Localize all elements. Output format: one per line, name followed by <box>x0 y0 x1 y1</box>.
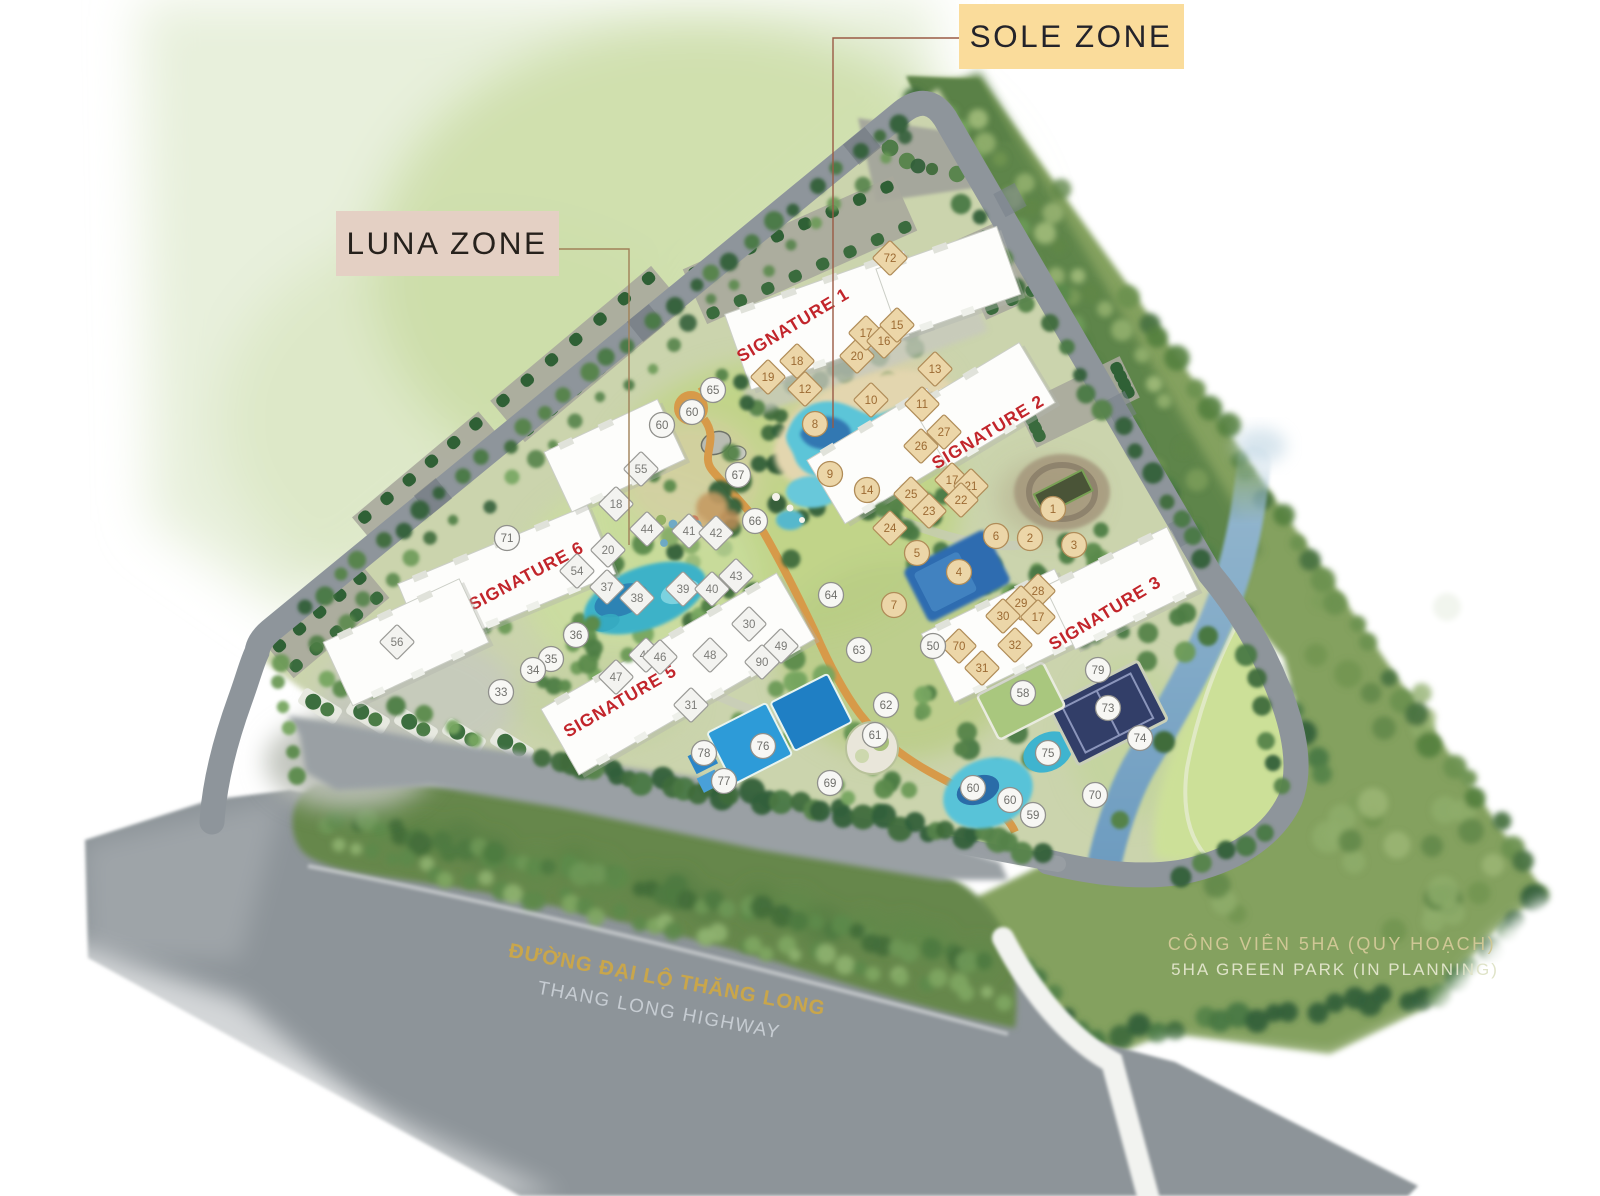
svg-text:5HA GREEN PARK (IN PLANNING): 5HA GREEN PARK (IN PLANNING) <box>1171 960 1499 979</box>
svg-text:61: 61 <box>869 730 882 742</box>
svg-text:18: 18 <box>610 499 623 511</box>
svg-text:2: 2 <box>1027 533 1033 545</box>
svg-text:23: 23 <box>923 506 936 518</box>
svg-text:1: 1 <box>1050 504 1056 516</box>
svg-text:69: 69 <box>824 778 837 790</box>
svg-text:7: 7 <box>891 600 897 612</box>
svg-text:LUNA ZONE: LUNA ZONE <box>346 225 547 261</box>
svg-text:56: 56 <box>391 637 404 649</box>
svg-text:60: 60 <box>686 407 699 419</box>
svg-text:32: 32 <box>1009 640 1022 652</box>
svg-text:9: 9 <box>827 469 833 481</box>
svg-text:12: 12 <box>799 384 812 396</box>
svg-text:8: 8 <box>812 419 818 431</box>
svg-text:59: 59 <box>1027 810 1040 822</box>
svg-text:66: 66 <box>749 516 762 528</box>
svg-text:20: 20 <box>602 545 615 557</box>
svg-text:11: 11 <box>916 399 928 411</box>
svg-text:71: 71 <box>501 533 514 545</box>
svg-text:27: 27 <box>938 427 951 439</box>
svg-text:77: 77 <box>718 776 731 788</box>
svg-text:90: 90 <box>756 657 769 669</box>
svg-text:62: 62 <box>880 700 893 712</box>
svg-text:39: 39 <box>677 584 690 596</box>
svg-text:60: 60 <box>656 420 669 432</box>
svg-text:79: 79 <box>1092 665 1105 677</box>
svg-text:22: 22 <box>955 495 968 507</box>
svg-text:78: 78 <box>698 748 711 760</box>
svg-text:75: 75 <box>1042 748 1055 760</box>
svg-text:6: 6 <box>993 531 999 543</box>
svg-text:26: 26 <box>915 441 928 453</box>
svg-text:74: 74 <box>1134 733 1147 745</box>
svg-text:64: 64 <box>825 590 838 602</box>
svg-text:58: 58 <box>1017 688 1030 700</box>
svg-text:72: 72 <box>884 253 897 265</box>
svg-text:20: 20 <box>851 351 864 363</box>
svg-text:31: 31 <box>685 700 698 712</box>
svg-text:38: 38 <box>631 593 644 605</box>
svg-text:67: 67 <box>732 470 745 482</box>
svg-text:SOLE ZONE: SOLE ZONE <box>970 18 1173 54</box>
svg-text:44: 44 <box>641 524 654 536</box>
svg-text:30: 30 <box>997 611 1010 623</box>
svg-text:24: 24 <box>884 523 897 535</box>
svg-text:37: 37 <box>601 582 614 594</box>
svg-text:25: 25 <box>905 489 918 501</box>
svg-text:54: 54 <box>571 566 584 578</box>
svg-text:17: 17 <box>1032 612 1045 624</box>
svg-text:28: 28 <box>1032 586 1045 598</box>
svg-text:41: 41 <box>683 526 696 538</box>
svg-text:16: 16 <box>878 336 891 348</box>
svg-text:35: 35 <box>545 654 558 666</box>
svg-text:19: 19 <box>762 372 775 384</box>
svg-text:40: 40 <box>706 584 719 596</box>
svg-text:29: 29 <box>1015 598 1028 610</box>
svg-text:73: 73 <box>1102 703 1115 715</box>
svg-text:70: 70 <box>953 641 966 653</box>
svg-text:30: 30 <box>743 619 756 631</box>
svg-text:43: 43 <box>730 571 743 583</box>
svg-text:CÔNG VIÊN 5HA (QUY HOẠCH): CÔNG VIÊN 5HA (QUY HOẠCH) <box>1168 933 1496 954</box>
svg-text:31: 31 <box>976 663 989 675</box>
svg-text:4: 4 <box>956 567 963 579</box>
svg-text:47: 47 <box>610 672 623 684</box>
svg-text:55: 55 <box>635 464 648 476</box>
svg-text:63: 63 <box>853 645 866 657</box>
svg-text:48: 48 <box>704 650 717 662</box>
svg-text:10: 10 <box>865 395 878 407</box>
svg-text:18: 18 <box>791 356 804 368</box>
svg-text:15: 15 <box>891 320 904 332</box>
svg-text:36: 36 <box>570 630 583 642</box>
svg-text:3: 3 <box>1071 540 1077 552</box>
svg-text:42: 42 <box>710 528 723 540</box>
svg-text:49: 49 <box>775 641 788 653</box>
svg-text:76: 76 <box>757 741 770 753</box>
svg-text:13: 13 <box>929 364 942 376</box>
svg-text:14: 14 <box>861 485 874 497</box>
svg-text:50: 50 <box>927 641 940 653</box>
svg-text:60: 60 <box>1004 795 1017 807</box>
svg-text:60: 60 <box>967 783 980 795</box>
svg-text:70: 70 <box>1089 790 1102 802</box>
svg-text:5: 5 <box>914 548 920 560</box>
svg-text:65: 65 <box>707 385 720 397</box>
svg-text:33: 33 <box>495 687 508 699</box>
svg-text:46: 46 <box>654 652 667 664</box>
svg-text:34: 34 <box>527 665 540 677</box>
